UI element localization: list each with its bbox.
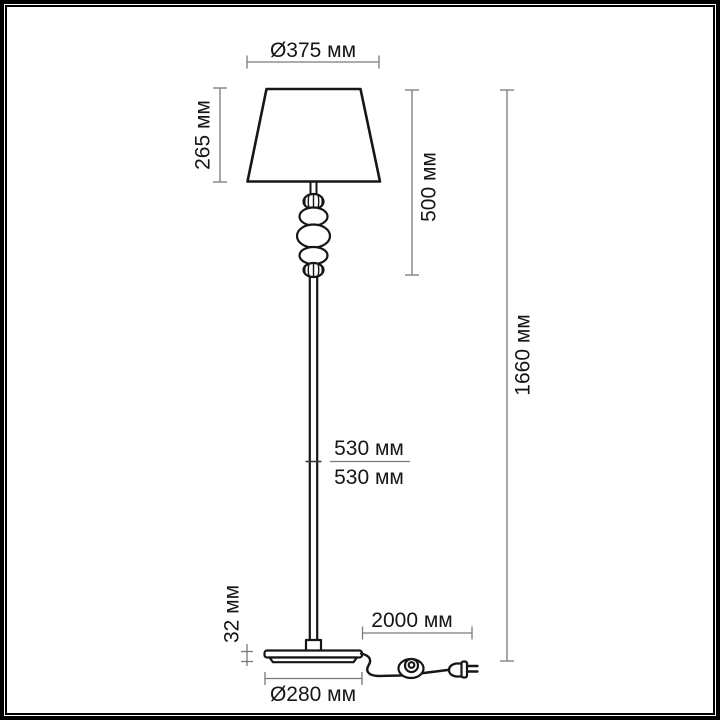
floor-lamp [248, 89, 478, 678]
dim-upper-section-label: 500 мм [418, 152, 441, 222]
dim-shade-height-label: 265 мм [192, 100, 215, 170]
ribbed-bead-bottom [304, 263, 324, 277]
glass-pebble-upper [300, 208, 328, 226]
dim-shade-height: 265 мм [192, 88, 228, 182]
lampshade [248, 89, 381, 182]
glass-pebble-lower [300, 247, 328, 264]
plug-body [449, 664, 462, 677]
base [265, 651, 363, 663]
plug-face [462, 662, 468, 678]
foot-switch [399, 659, 424, 678]
dim-base-diameter-label: Ø280 мм [270, 683, 356, 706]
dim-shade-diameter-label: Ø375 мм [270, 39, 356, 62]
glass-pebble-middle [297, 225, 330, 248]
dim-pole-lower-label: 530 мм [334, 466, 404, 489]
floor-lamp-dimension-drawing: Ø375 мм 265 мм 500 мм 1660 мм 530 мм [0, 0, 720, 720]
base-bottom-lip [270, 658, 358, 663]
dim-upper-section: 500 мм [405, 90, 441, 275]
dim-cord-length-label: 2000 мм [371, 609, 452, 632]
decorative-bead-stack [297, 194, 330, 277]
dim-shade-diameter: Ø375 мм [247, 39, 379, 69]
dim-cord-length: 2000 мм [363, 609, 473, 640]
dim-total-height-label: 1660 мм [512, 314, 535, 395]
dim-pole-sections: 530 мм 530 мм [330, 437, 410, 489]
pole [310, 277, 317, 641]
dim-pole-upper-label: 530 мм [334, 437, 404, 460]
diagram-canvas: Ø375 мм 265 мм 500 мм 1660 мм 530 мм [0, 0, 720, 720]
dim-total-height: 1660 мм [500, 90, 535, 661]
pole-collar [306, 640, 321, 651]
power-plug [449, 662, 478, 678]
dim-base-diameter: Ø280 мм [265, 672, 362, 706]
dim-base-height: 32 мм [221, 585, 254, 666]
foot-switch-button [409, 662, 415, 668]
dim-base-height-label: 32 мм [221, 585, 244, 643]
